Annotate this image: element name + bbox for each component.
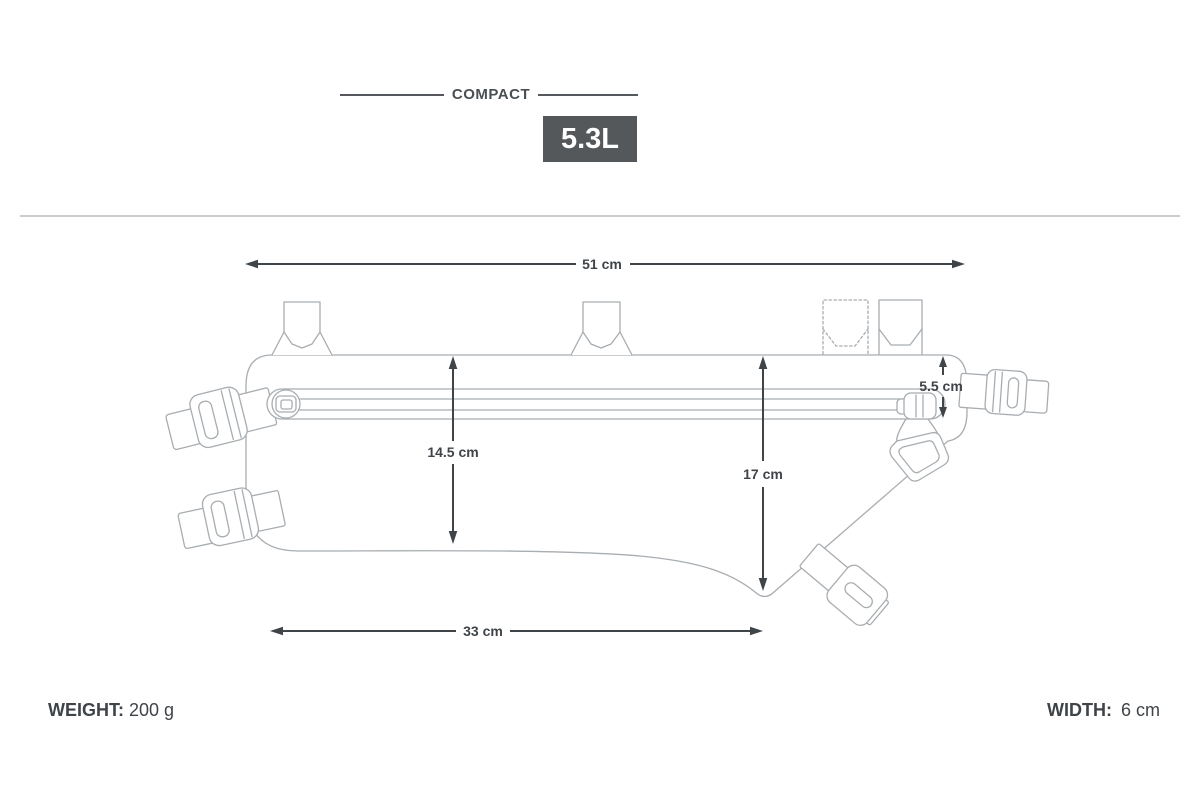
top-strap-dotted [823, 300, 868, 354]
width-spec: WIDTH:6 cm [1047, 700, 1160, 721]
frame-pack-dimension-diagram: 51 cm 33 cm 14.5 cm 17 cm [0, 0, 1200, 800]
dimension-bottom-width: 33 cm [270, 623, 763, 639]
top-strap-solid [879, 300, 922, 354]
size-guide-page: COMPACT 5.3L [0, 0, 1200, 800]
weight-value: 200 g [129, 700, 174, 720]
dimension-top-width: 51 cm [245, 256, 965, 272]
svg-text:5.5 cm: 5.5 cm [919, 378, 963, 394]
zipper [267, 389, 945, 419]
top-strap-tab-left [272, 302, 332, 355]
svg-text:14.5 cm: 14.5 cm [427, 444, 478, 460]
weight-label: WEIGHT: [48, 700, 124, 720]
zipper-garage-left [272, 390, 300, 418]
weight-spec: WEIGHT:200 g [48, 700, 174, 721]
buckle-right [959, 367, 1050, 417]
width-label: WIDTH: [1047, 700, 1112, 720]
width-value: 6 cm [1121, 700, 1160, 720]
svg-text:17 cm: 17 cm [743, 466, 783, 482]
svg-text:33 cm: 33 cm [463, 623, 503, 639]
top-strap-tab-middle [571, 302, 632, 355]
svg-text:51 cm: 51 cm [582, 256, 622, 272]
